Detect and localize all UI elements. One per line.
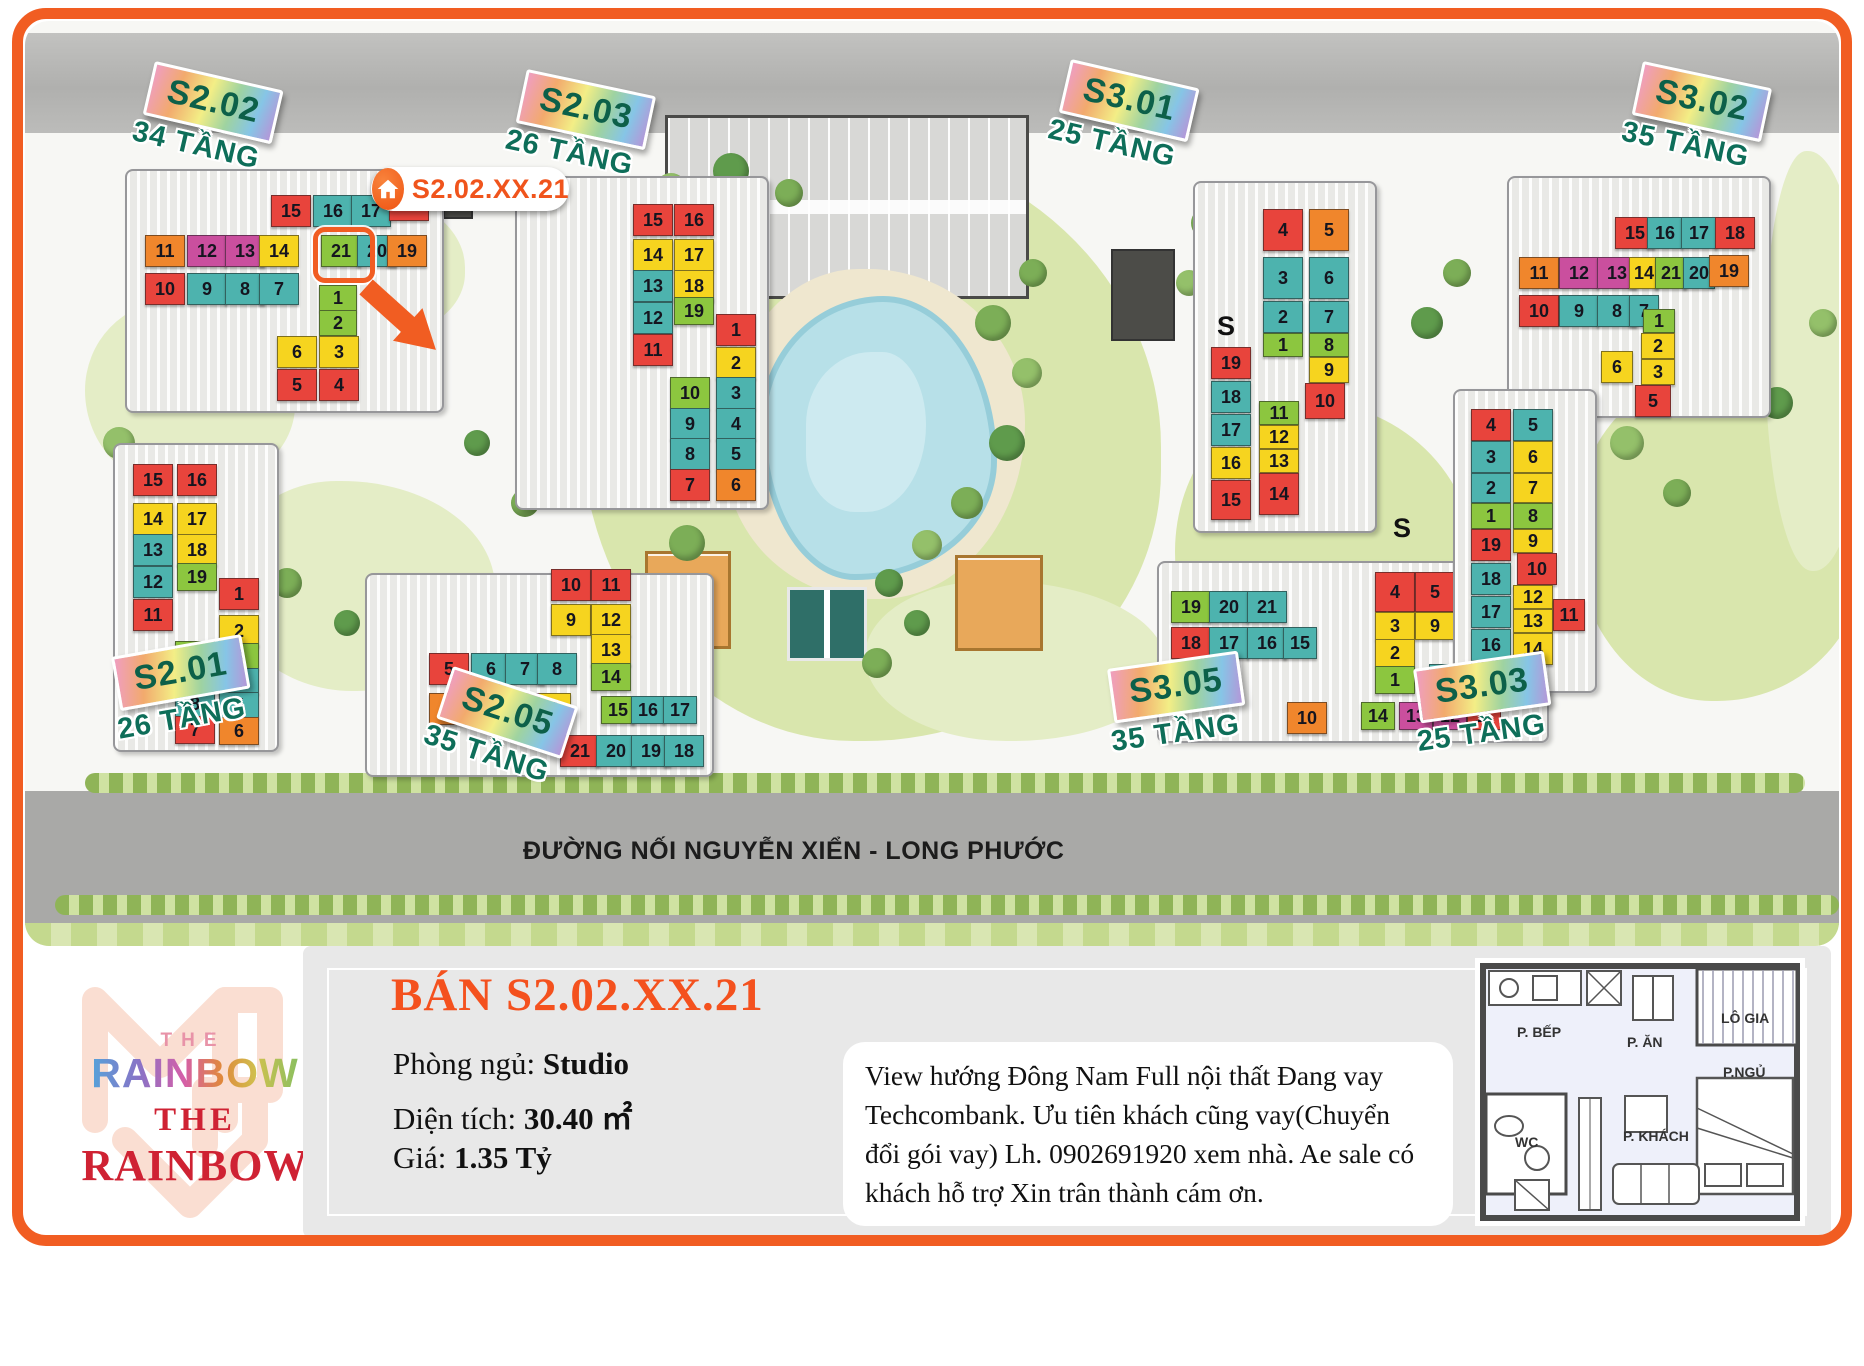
area-spec: Diện tích: 30.40 ㎡ (393, 1093, 632, 1138)
home-icon (372, 168, 404, 210)
unit-cell-S2.01-19: 19 (177, 563, 217, 591)
price-value: 1.35 Tỷ (454, 1140, 552, 1175)
unit-cell-S3.01-1: 1 (1263, 333, 1303, 357)
tree-icon (334, 610, 360, 636)
tree-icon (1012, 358, 1042, 388)
unit-cell-S2.03-3: 3 (716, 377, 756, 409)
listing-panel: BÁN S2.02.XX.21 Phòng ngủ: Studio Diện t… (303, 946, 1831, 1238)
unit-cell-S2.03-19: 19 (674, 297, 714, 325)
tree-icon (1411, 307, 1443, 339)
tree-icon (1610, 426, 1644, 460)
unit-cell-S2.05-12: 12 (591, 604, 631, 636)
unit-cell-S3.03-11: 11 (1553, 599, 1585, 631)
unit-cell-S2.01-1: 1 (219, 578, 259, 610)
pool-shallow (806, 352, 926, 512)
unit-cell-S3.05-15: 15 (1283, 627, 1317, 659)
unit-cell-S2.05-17: 17 (663, 696, 697, 724)
room-label: WC (1515, 1134, 1538, 1150)
unit-cell-S3.03-13: 13 (1513, 609, 1553, 633)
unit-cell-S3.03-8: 8 (1513, 503, 1553, 529)
unit-cell-S3.01-2: 2 (1263, 301, 1303, 333)
bedroom-value: Studio (543, 1046, 629, 1081)
unit-cell-S2.01-11: 11 (133, 599, 173, 631)
unit-cell-S2.03-1: 1 (716, 314, 756, 346)
unit-cell-S2.03-16: 16 (674, 204, 714, 236)
unit-cell-S3.02-9: 9 (1559, 295, 1599, 327)
unit-cell-S2.03-15: 15 (633, 204, 673, 236)
unit-cell-S3.05-19: 19 (1171, 591, 1211, 623)
unit-cell-S3.01-13: 13 (1259, 449, 1299, 473)
unit-cell-S3.05-2: 2 (1375, 639, 1415, 667)
tree-icon (1809, 309, 1837, 337)
unit-cell-S2.05-13: 13 (591, 634, 631, 666)
price-label: Giá: (393, 1140, 454, 1175)
room-label: P.NGỦ (1723, 1064, 1766, 1080)
room-label: LÔ GIA (1721, 1010, 1769, 1026)
unit-cell-S2.05-16: 16 (631, 696, 665, 724)
logo-rainbow-text: RAINBOW (85, 1050, 305, 1097)
bedroom-spec: Phòng ngủ: Studio (393, 1046, 629, 1082)
unit-cell-S3.01-3: 3 (1263, 257, 1303, 299)
unit-cell-S3.03-1: 1 (1471, 503, 1511, 529)
unit-cell-S3.02-2: 2 (1641, 333, 1675, 359)
listing-description: View hướng Đông Nam Full nội thất Đang v… (843, 1042, 1453, 1226)
listing-image: ĐƯỜNG NỐI NGUYỄN XIỂN - LONG PHƯỚC 15161… (0, 0, 1864, 1366)
unit-cell-S3.02-16: 16 (1647, 217, 1683, 249)
unit-cell-S3.02-1: 1 (1643, 309, 1675, 333)
tree-icon (912, 530, 942, 560)
unit-cell-S3.03-17: 17 (1471, 596, 1511, 628)
unit-cell-S2.05-8: 8 (537, 653, 577, 685)
unit-cell-S3.02-18: 18 (1715, 217, 1755, 249)
tennis-court (787, 587, 867, 661)
unit-cell-S3.05-16: 16 (1247, 627, 1287, 659)
room-label: P. ĂN (1627, 1034, 1663, 1050)
unit-cell-S3.03-19: 19 (1471, 529, 1511, 561)
unit-cell-S3.03-10: 10 (1517, 553, 1557, 585)
pointer-arrow-icon (345, 271, 465, 391)
unit-cell-S3.01-6: 6 (1309, 257, 1349, 299)
unit-cell-S2.05-14: 14 (591, 663, 631, 691)
hedge-row (55, 895, 1839, 915)
unit-cell-S2.05-11: 11 (591, 569, 631, 601)
room-label: P. BẾP (1517, 1024, 1561, 1040)
tree-icon (989, 425, 1025, 461)
unit-cell-S2.03-6: 6 (716, 469, 756, 501)
unit-cell-S3.03-18: 18 (1471, 563, 1511, 595)
tree-icon (464, 430, 490, 456)
rainbow-logo: THE RAINBOW THE RAINBOW (55, 950, 325, 1234)
tree-icon (951, 487, 983, 519)
logo-the-red-text: THE (85, 1102, 305, 1139)
road-name-label: ĐƯỜNG NỐI NGUYỄN XIỂN - LONG PHƯỚC (523, 837, 1064, 866)
floorplan-thumbnail: P. BẾPP. ĂNLÔ GIAP.NGỦWCP. KHÁCH (1475, 958, 1805, 1226)
unit-cell-S2.03-9: 9 (670, 408, 710, 440)
unit-cell-S3.01-12: 12 (1259, 425, 1299, 449)
tree-icon (775, 179, 803, 207)
unit-cell-S2.02-10: 10 (145, 273, 185, 305)
floorplan-drawing (1475, 958, 1805, 1226)
price-spec: Giá: 1.35 Tỷ (393, 1140, 552, 1176)
unit-cell-S2.01-16: 16 (177, 464, 217, 496)
tree-icon (875, 569, 903, 597)
unit-cell-S2.01-15: 15 (133, 464, 173, 496)
tree-icon (1663, 479, 1691, 507)
unit-cell-S2.03-5: 5 (716, 438, 756, 470)
unit-cell-S3.05-4: 4 (1375, 572, 1415, 612)
unit-cell-S3.05-20: 20 (1209, 591, 1249, 623)
unit-marker-code: S2.02.XX.21 (412, 174, 569, 205)
unit-cell-S3.02-5: 5 (1635, 385, 1671, 417)
building-label-S3.05: S3.0535 TẦNG (1107, 651, 1250, 758)
tree-icon (975, 305, 1011, 341)
unit-cell-S3.01-11: 11 (1259, 401, 1299, 425)
unit-cell-S3.01-14: 14 (1259, 473, 1299, 515)
unit-cell-S2.01-13: 13 (133, 534, 173, 566)
unit-cell-S3.03-3: 3 (1471, 441, 1511, 473)
unit-marker-badge: S2.02.XX.21 (371, 167, 569, 211)
unit-cell-S3.01-8: 8 (1309, 333, 1349, 357)
unit-cell-S3.05-3: 3 (1375, 612, 1415, 640)
unit-cell-S3.05-5: 5 (1415, 572, 1455, 612)
unit-cell-S3.03-5: 5 (1513, 409, 1553, 441)
unit-cell-S3.02-17: 17 (1681, 217, 1717, 249)
unit-cell-S3.01-9: 9 (1309, 357, 1349, 383)
unit-cell-S3.02-19: 19 (1709, 255, 1749, 287)
unit-cell-S3.05-9: 9 (1415, 612, 1455, 640)
unit-cell-S2.05-15: 15 (601, 696, 635, 724)
logo-rainbow-red-text: RAINBOW (65, 1140, 325, 1191)
unit-cell-S3.01-7: 7 (1309, 301, 1349, 333)
logo-the-text: THE (113, 1030, 273, 1052)
unit-cell-S2.03-7: 7 (670, 469, 710, 501)
unit-cell-S2.01-17: 17 (177, 503, 217, 535)
unit-cell-S2.02-7: 7 (259, 273, 299, 305)
unit-cell-S3.03-2: 2 (1471, 473, 1511, 503)
unit-cell-S3.02-12: 12 (1559, 257, 1599, 289)
unit-cell-S3.01-5: 5 (1309, 209, 1349, 251)
unit-cell-S3.05-14: 14 (1361, 702, 1395, 730)
unit-cell-S3.02-6: 6 (1601, 351, 1633, 383)
unit-cell-S3.05-1: 1 (1375, 666, 1415, 694)
unit-cell-S2.05-9: 9 (551, 604, 591, 636)
unit-cell-S2.02-6: 6 (277, 336, 317, 368)
unit-cell-S2.02-12: 12 (187, 235, 227, 267)
unit-cell-S2.05-18: 18 (664, 735, 704, 767)
unit-cell-S3.01-17: 17 (1211, 414, 1251, 446)
unit-cell-S3.03-7: 7 (1513, 473, 1553, 503)
plan-annotation: S (1217, 311, 1235, 342)
area-label: Diện tích: (393, 1101, 524, 1136)
unit-cell-S2.02-11: 11 (145, 235, 185, 267)
basketball-court (955, 555, 1043, 651)
unit-cell-S3.03-4: 4 (1471, 409, 1511, 441)
unit-cell-S2.03-4: 4 (716, 408, 756, 440)
utility-block (1111, 249, 1175, 341)
unit-cell-S2.02-15: 15 (271, 195, 311, 227)
unit-cell-S2.02-9: 9 (187, 273, 227, 305)
unit-cell-S2.03-2: 2 (716, 347, 756, 379)
listing-title: BÁN S2.02.XX.21 (391, 968, 764, 1022)
unit-cell-S2.02-14: 14 (259, 235, 299, 267)
unit-cell-S2.03-13: 13 (633, 270, 673, 302)
unit-cell-S3.03-12: 12 (1513, 585, 1553, 609)
plan-annotation: S (1393, 513, 1411, 544)
unit-cell-S2.05-10: 10 (551, 569, 591, 601)
unit-cell-S3.03-6: 6 (1513, 441, 1553, 473)
unit-cell-S3.02-11: 11 (1519, 257, 1559, 289)
unit-cell-S3.01-16: 16 (1211, 447, 1251, 479)
unit-cell-S2.01-18: 18 (177, 534, 217, 566)
unit-cell-S3.01-10: 10 (1305, 383, 1345, 419)
unit-cell-S2.05-20: 20 (596, 735, 636, 767)
tree-icon (1019, 259, 1047, 287)
unit-cell-S3.05-10: 10 (1287, 702, 1327, 734)
tree-icon (669, 525, 705, 561)
unit-cell-S2.02-5: 5 (277, 369, 317, 401)
unit-cell-S2.03-10: 10 (670, 377, 710, 409)
tree-icon (904, 610, 930, 636)
unit-cell-S2.03-11: 11 (633, 334, 673, 366)
unit-cell-S3.02-3: 3 (1641, 359, 1675, 385)
unit-cell-S2.01-14: 14 (133, 503, 173, 535)
unit-cell-S3.05-21: 21 (1247, 591, 1287, 623)
unit-cell-S3.01-18: 18 (1211, 381, 1251, 413)
unit-cell-S3.01-15: 15 (1211, 480, 1251, 520)
tree-icon (862, 648, 892, 678)
unit-cell-S3.01-19: 19 (1211, 347, 1251, 379)
unit-cell-S2.03-17: 17 (674, 239, 714, 271)
bedroom-label: Phòng ngủ: (393, 1046, 543, 1081)
unit-cell-S2.03-12: 12 (633, 302, 673, 334)
unit-cell-S2.01-12: 12 (133, 566, 173, 598)
listing-footer: THE RAINBOW THE RAINBOW BÁN S2.02.XX.21 … (25, 946, 1839, 1238)
hedge-row (85, 773, 1805, 793)
tree-icon (1443, 259, 1471, 287)
unit-cell-S3.02-10: 10 (1519, 295, 1559, 327)
unit-cell-S2.02-16: 16 (313, 195, 353, 227)
building-label-S3.03: S3.0325 TẦNG (1413, 651, 1556, 758)
room-label: P. KHÁCH (1623, 1128, 1689, 1144)
unit-cell-S3.01-4: 4 (1263, 209, 1303, 251)
site-plan: ĐƯỜNG NỐI NGUYỄN XIỂN - LONG PHƯỚC 15161… (25, 21, 1839, 946)
unit-cell-S2.02-19: 19 (387, 235, 427, 267)
unit-cell-S3.03-9: 9 (1513, 529, 1553, 553)
unit-cell-S2.03-8: 8 (670, 438, 710, 470)
area-value: 30.40 ㎡ (524, 1101, 633, 1136)
unit-cell-S2.03-14: 14 (633, 239, 673, 271)
